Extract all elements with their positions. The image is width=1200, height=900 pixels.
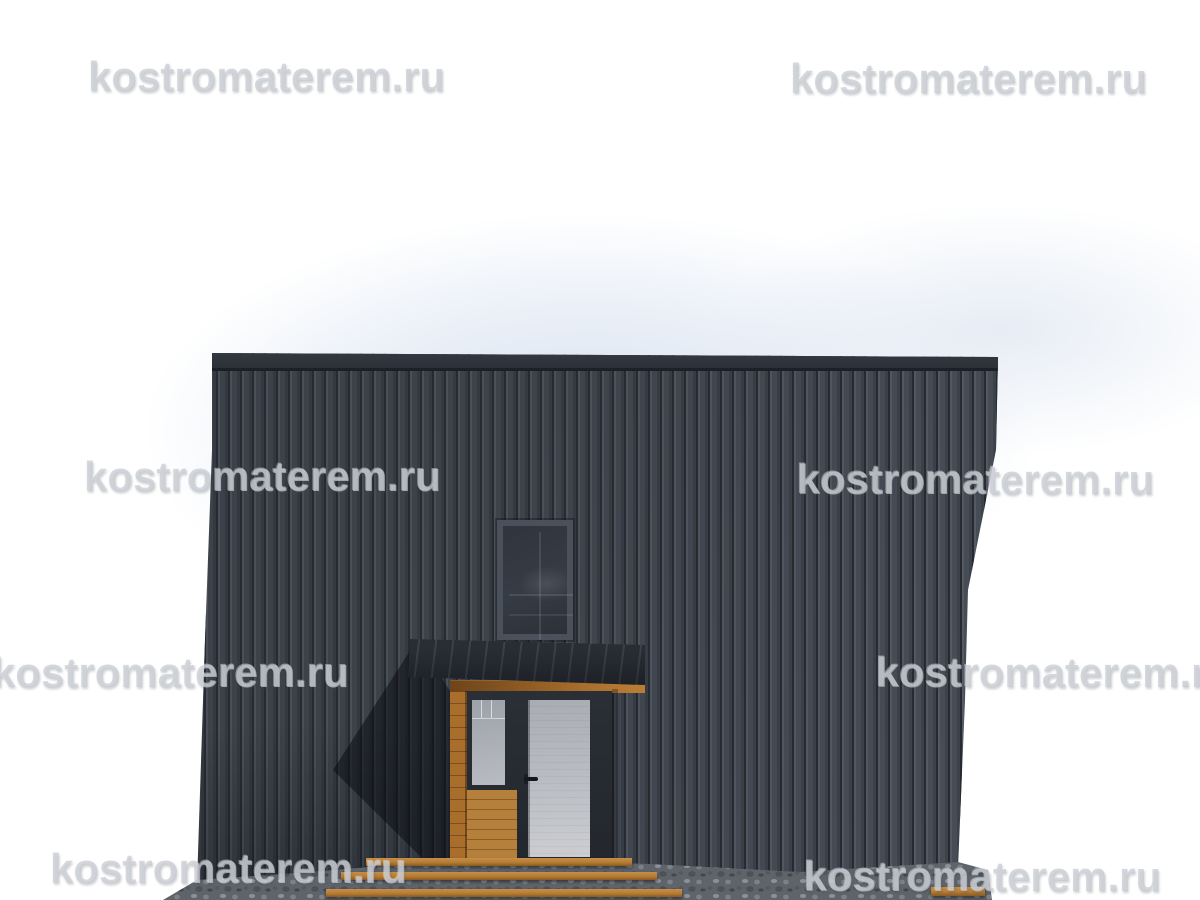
door-frame-shade-band [612,689,618,861]
door-handle [524,777,538,781]
watermark: kostromaterem.ru [797,459,1154,501]
watermark: kostromaterem.ru [0,652,349,694]
watermark: kostromaterem.ru [84,456,441,498]
sidelight-mullion-vertical-1 [481,700,482,718]
upper-window-glass [503,526,567,634]
sidelight-mullion-vertical-2 [491,700,492,718]
upper-window-mullion-vertical [539,532,541,640]
watermark: kostromaterem.ru [88,56,445,98]
watermark: kostromaterem.ru [804,856,1161,898]
upper-window-frame [497,520,573,640]
watermark: kostromaterem.ru [790,58,1147,100]
entrance-sidelight-window [472,700,505,785]
entrance-door-panel [528,700,590,857]
watermark: kostromaterem.ru [876,652,1200,694]
upper-window-mullion-horizontal-2 [509,614,573,616]
watermark: kostromaterem.ru [50,848,407,890]
upper-window-mullion-horizontal-1 [509,594,573,596]
entrance-wood-post [450,692,467,862]
sidelight-mullion-horizontal [472,718,505,719]
render-scene: kostromaterem.ru kostromaterem.ru kostro… [0,0,1200,900]
